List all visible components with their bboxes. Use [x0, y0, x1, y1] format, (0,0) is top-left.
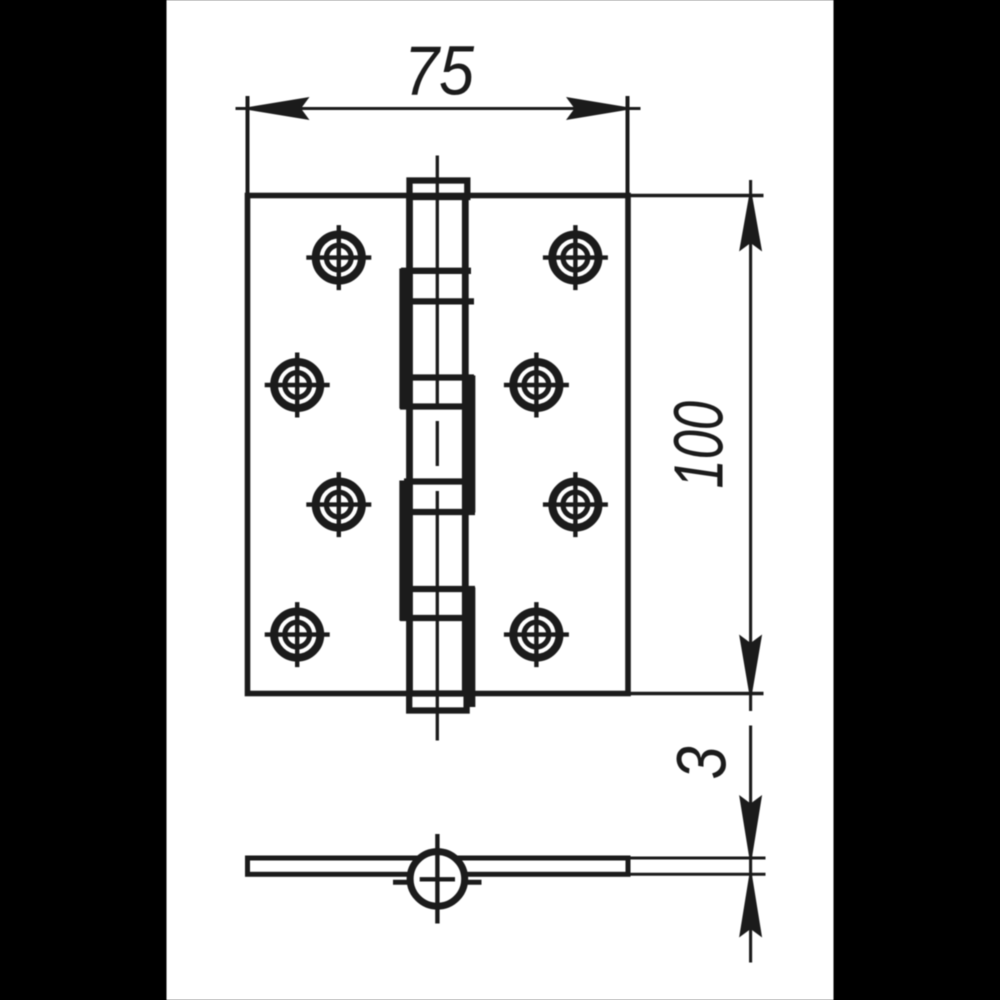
svg-text:75: 75	[404, 32, 475, 110]
svg-text:100: 100	[660, 401, 738, 489]
svg-text:3: 3	[662, 746, 741, 779]
